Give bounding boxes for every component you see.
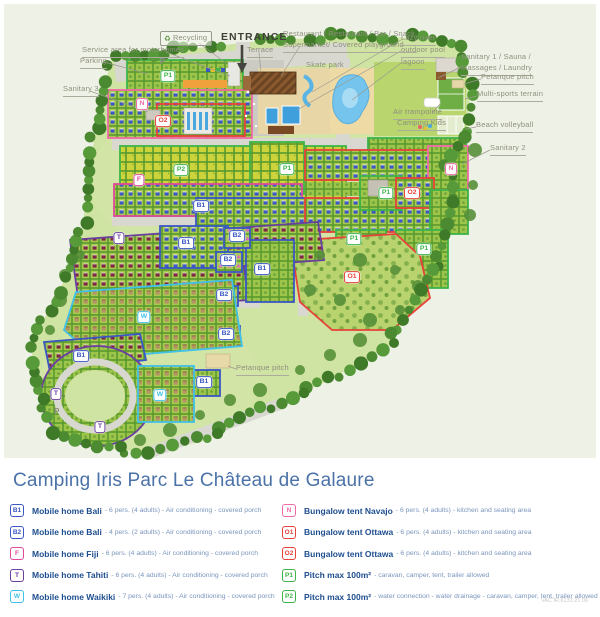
zone-badge-p1: P1 [378,187,393,199]
zone-badge-p1: P1 [416,243,431,255]
parking-mark: P [160,56,166,68]
map-label: lagoon [401,57,425,70]
legend-badge-b1: B1 [10,504,24,517]
legend-item: TMobile home Tahiti- 6 pers. (4 adults) … [10,569,282,582]
recycle-icon: ♻ [164,35,171,43]
legend-badge-o1: O1 [282,526,296,539]
pool-pergola [268,126,294,134]
zone-badge-b1: B1 [193,200,209,212]
map-label: Parking [80,56,107,69]
legend-item: B2Mobile home Bali- 4 pers. (2 adults) -… [10,526,282,539]
legend-details: - 4 pers. (2 adults) - Air conditioning … [105,529,261,536]
zone-badge-p1: P1 [279,163,294,175]
map-label: Petanque pitch [481,72,534,85]
legend-column-right: NBungalow tent Navajo- 6 pers. (4 adults… [282,504,594,612]
legend-name: Bungalow tent Ottawa [304,549,393,559]
campground-map: ♻RecyclingENTRANCEService area for motor… [0,0,600,462]
legend: B1Mobile home Bali- 6 pers. (4 adults) -… [10,504,594,612]
legend-name: Bungalow tent Navajo [304,506,393,516]
legend-details: - 6 pers. (4 adults) - Air conditioning … [111,572,267,579]
legend-details: - 7 pers. (4 adults) - Air conditioning … [118,593,274,600]
legend-name: Mobile home Fiji [32,549,99,559]
zone-badge-n: N [136,98,148,110]
zone-badge-b1: B1 [178,237,194,249]
zone-badge-b2: B2 [220,254,236,266]
zone-badge-p1: P1 [346,233,361,245]
legend-badge-p2: P2 [282,590,296,603]
legend-badge-t: T [10,569,24,582]
legend-badge-w: W [10,590,24,603]
legend-name: Mobile home Tahiti [32,570,108,580]
zone-badge-o2: O2 [404,187,420,199]
legend-item: O2Bungalow tent Ottawa- 6 pers. (4 adult… [282,547,594,560]
legend-details: - caravan, camper, tent, trailer allowed [374,572,489,579]
map-label: Beach volleyball [476,120,533,133]
zone-badge-b2: B2 [229,230,245,242]
zone-badge-n: N [445,163,457,175]
map-label: Restaurant / Restaurant / Bar / Snack, S… [283,29,417,53]
plan-reference: VAC IR.6133.21 06 [541,598,588,604]
petanque-pitch-right [452,80,464,88]
legend-badge-b2: B2 [10,526,24,539]
legend-name: Mobile home Bali [32,527,102,537]
legend-name: Pitch max 100m² [304,570,371,580]
parking-mark: P [54,406,60,418]
reception-building [228,62,240,86]
map-label: Sanitary 3 [63,84,99,97]
zone-badge-o1: O1 [344,271,360,283]
service-building [183,80,227,88]
legend-name: Mobile home Bali [32,506,102,516]
legend-name: Bungalow tent Ottawa [304,527,393,537]
legend-badge-f: F [10,547,24,560]
legend-panel: Camping Iris Parc Le Château de Galaure … [0,460,600,617]
zone-badge-o2: O2 [155,115,171,127]
outdoor-pool-1 [266,108,278,124]
legend-name: Pitch max 100m² [304,592,371,602]
legend-item: FMobile home Fiji- 6 pers. (4 adults) - … [10,547,282,560]
zone-badge-f: F [133,174,144,186]
zone-badge-p2: P2 [173,164,188,176]
legend-item: O1Bungalow tent Ottawa- 6 pers. (4 adult… [282,526,594,539]
zone-badge-t: T [113,232,124,244]
map-label: Terrace [247,45,273,58]
legend-name: Mobile home Waikiki [32,592,115,602]
zone-badge-t: T [94,421,105,433]
legend-column-left: B1Mobile home Bali- 6 pers. (4 adults) -… [10,504,282,612]
legend-item: NBungalow tent Navajo- 6 pers. (4 adults… [282,504,594,517]
entrance-label: ENTRANCE [221,30,287,45]
legend-item: P1Pitch max 100m²- caravan, camper, tent… [282,569,594,582]
zone-badge-t: T [50,388,61,400]
zone-badge-p1: P1 [160,70,175,82]
map-label: Petanque pitch [236,363,289,376]
map-label: Camping Kids [397,118,446,131]
zone-badge-b1: B1 [254,263,270,275]
terrace-area [243,76,251,90]
legend-badge-n: N [282,504,296,517]
map-label: Multi-sports terrain [477,89,543,102]
map-label: Skate park [306,60,344,71]
zone-badge-w: W [153,389,166,401]
page-title: Camping Iris Parc Le Château de Galaure [13,470,375,492]
map-label: outdoor pool [401,45,445,58]
air-trampoline [424,98,440,107]
zone-badge-b2: B2 [218,328,234,340]
legend-item: B1Mobile home Bali- 6 pers. (4 adults) -… [10,504,282,517]
map-label: Sanitary 2 [490,143,526,156]
restaurant-roof [250,72,296,94]
zone-badge-b2: B2 [216,289,232,301]
legend-item: WMobile home Waikiki- 7 pers. (4 adults)… [10,590,282,603]
legend-details: - 6 pers. (4 adults) - Air conditioning … [105,507,261,514]
map-label-text: Recycling [173,33,207,44]
legend-badge-p1: P1 [282,569,296,582]
zone-badge-b1: B1 [73,350,89,362]
sauna-building [436,72,446,80]
legend-details: - 6 pers. (4 adults) - kitchen and seati… [396,507,531,514]
petanque-pitch-bottom [206,354,230,368]
outdoor-pool-2 [282,106,300,124]
zone-badge-w: W [137,311,150,323]
loop-center-green [65,370,125,422]
legend-badge-o2: O2 [282,547,296,560]
legend-details: - 6 pers. (4 adults) - Air conditioning … [102,550,258,557]
zone-badge-b1: B1 [196,376,212,388]
map-label: Lazy river [401,33,436,46]
legend-details: - 6 pers. (4 adults) - kitchen and seati… [396,550,531,557]
legend-details: - 6 pers. (4 adults) - kitchen and seati… [396,529,531,536]
lagoon-shallow [342,88,358,108]
